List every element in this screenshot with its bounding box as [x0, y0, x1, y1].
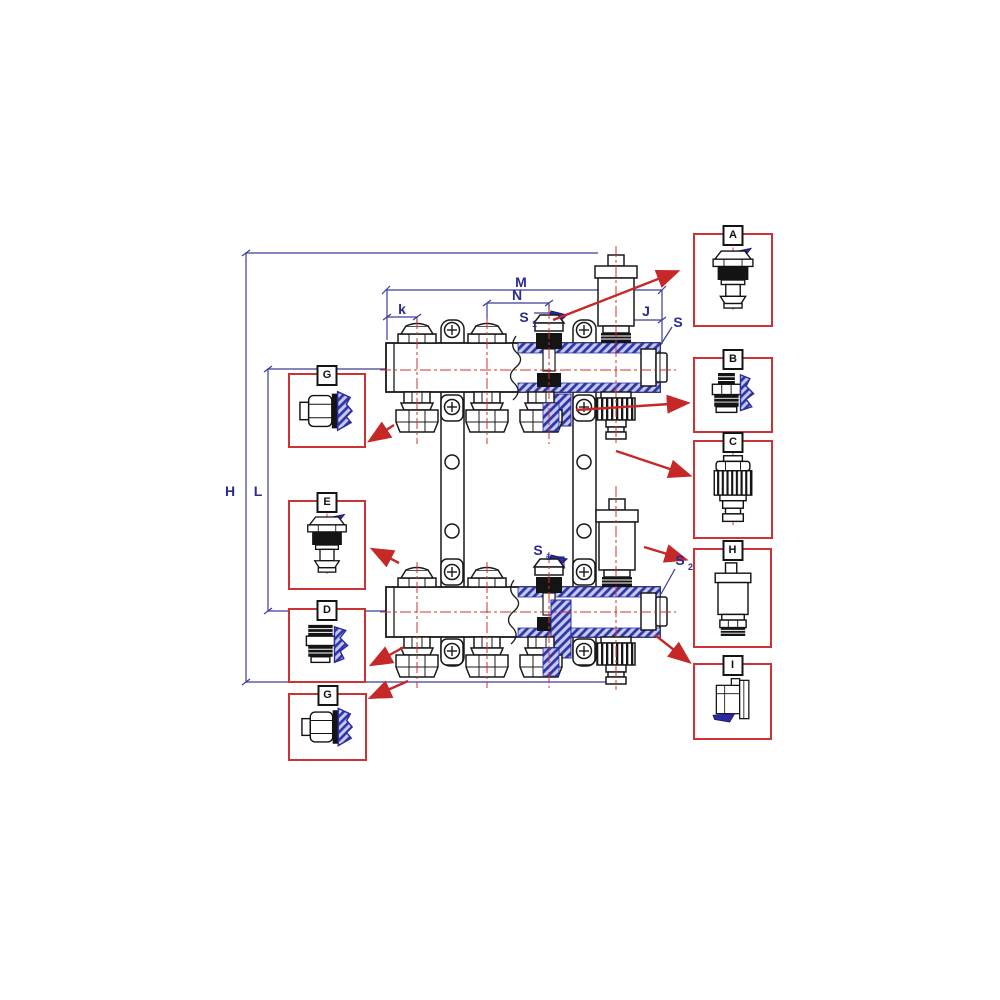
valve-insert-icon: [704, 242, 762, 318]
dim-S1-bottom-label: S: [533, 542, 542, 558]
arrow-to-C: [616, 451, 688, 475]
callout-letter-G-bottom: G: [323, 690, 332, 701]
valve-insert-icon: [299, 508, 355, 582]
pipe-adapter-icon: [297, 619, 357, 672]
air-vent-bottom: [596, 499, 638, 587]
arrow-to-I: [655, 635, 688, 661]
callout-letter-I: I: [731, 660, 734, 671]
dim-S1-top-sub: 1: [532, 319, 537, 329]
end-plug-icon: [706, 667, 760, 737]
dim-J-label: J: [642, 303, 650, 319]
manifold-diagram-page: H L M N k J S S 1 S 1 S 2 A B C H I: [0, 0, 1000, 1000]
callout-box-E: E: [288, 500, 366, 590]
callout-letter-B: B: [729, 354, 737, 365]
callout-tab-C: C: [723, 432, 744, 453]
dim-H-label: H: [225, 483, 235, 499]
callout-tab-G-top: G: [317, 365, 338, 386]
arrow-to-E: [374, 550, 399, 563]
callout-letter-A: A: [729, 230, 737, 241]
callout-tab-G-bottom: G: [317, 685, 338, 706]
end-plug-top: [641, 349, 656, 386]
dim-S1-bottom-sub: 1: [546, 552, 551, 562]
drain-valve-icon: [703, 450, 763, 529]
callout-box-A: A: [693, 233, 773, 327]
arrow-to-G-top: [371, 425, 394, 440]
dim-S-label: S: [673, 314, 682, 330]
dim-k-label: k: [398, 301, 406, 317]
bottom-manifold: [386, 499, 667, 684]
leader-S2: [661, 569, 675, 594]
callout-box-G-top: G: [288, 373, 366, 448]
dim-S2-label: S: [675, 552, 684, 568]
technical-drawing: H L M N k J S S 1 S 1 S 2: [0, 0, 1000, 1000]
callout-letter-G-top: G: [323, 370, 332, 381]
callout-letter-E: E: [323, 497, 330, 508]
dim-S1-top-label: S: [519, 309, 528, 325]
air-vent-icon: [703, 559, 763, 638]
callout-letter-C: C: [729, 437, 737, 448]
compression-fitting-icon: [296, 383, 358, 439]
dim-N-label: N: [512, 287, 522, 303]
callout-letter-H: H: [729, 545, 737, 556]
callout-box-G-bottom: G: [288, 693, 367, 761]
callout-box-B: B: [693, 357, 773, 433]
callout-tab-E: E: [317, 492, 338, 513]
callout-tab-H: H: [722, 540, 743, 561]
callout-tab-D: D: [317, 600, 338, 621]
callout-tab-A: A: [723, 225, 744, 246]
pipe-adapter-icon: [703, 369, 763, 422]
arrow-to-G-bottom: [372, 681, 408, 697]
compression-fitting-icon: [298, 700, 358, 754]
callout-tab-B: B: [723, 349, 744, 370]
callout-box-H: H: [693, 548, 772, 648]
callout-box-D: D: [288, 608, 366, 683]
callout-box-I: I: [693, 663, 772, 740]
dim-L-label: L: [254, 483, 263, 499]
callout-letter-D: D: [323, 605, 331, 616]
callout-box-C: C: [693, 440, 773, 539]
callout-tab-I: I: [722, 655, 743, 676]
